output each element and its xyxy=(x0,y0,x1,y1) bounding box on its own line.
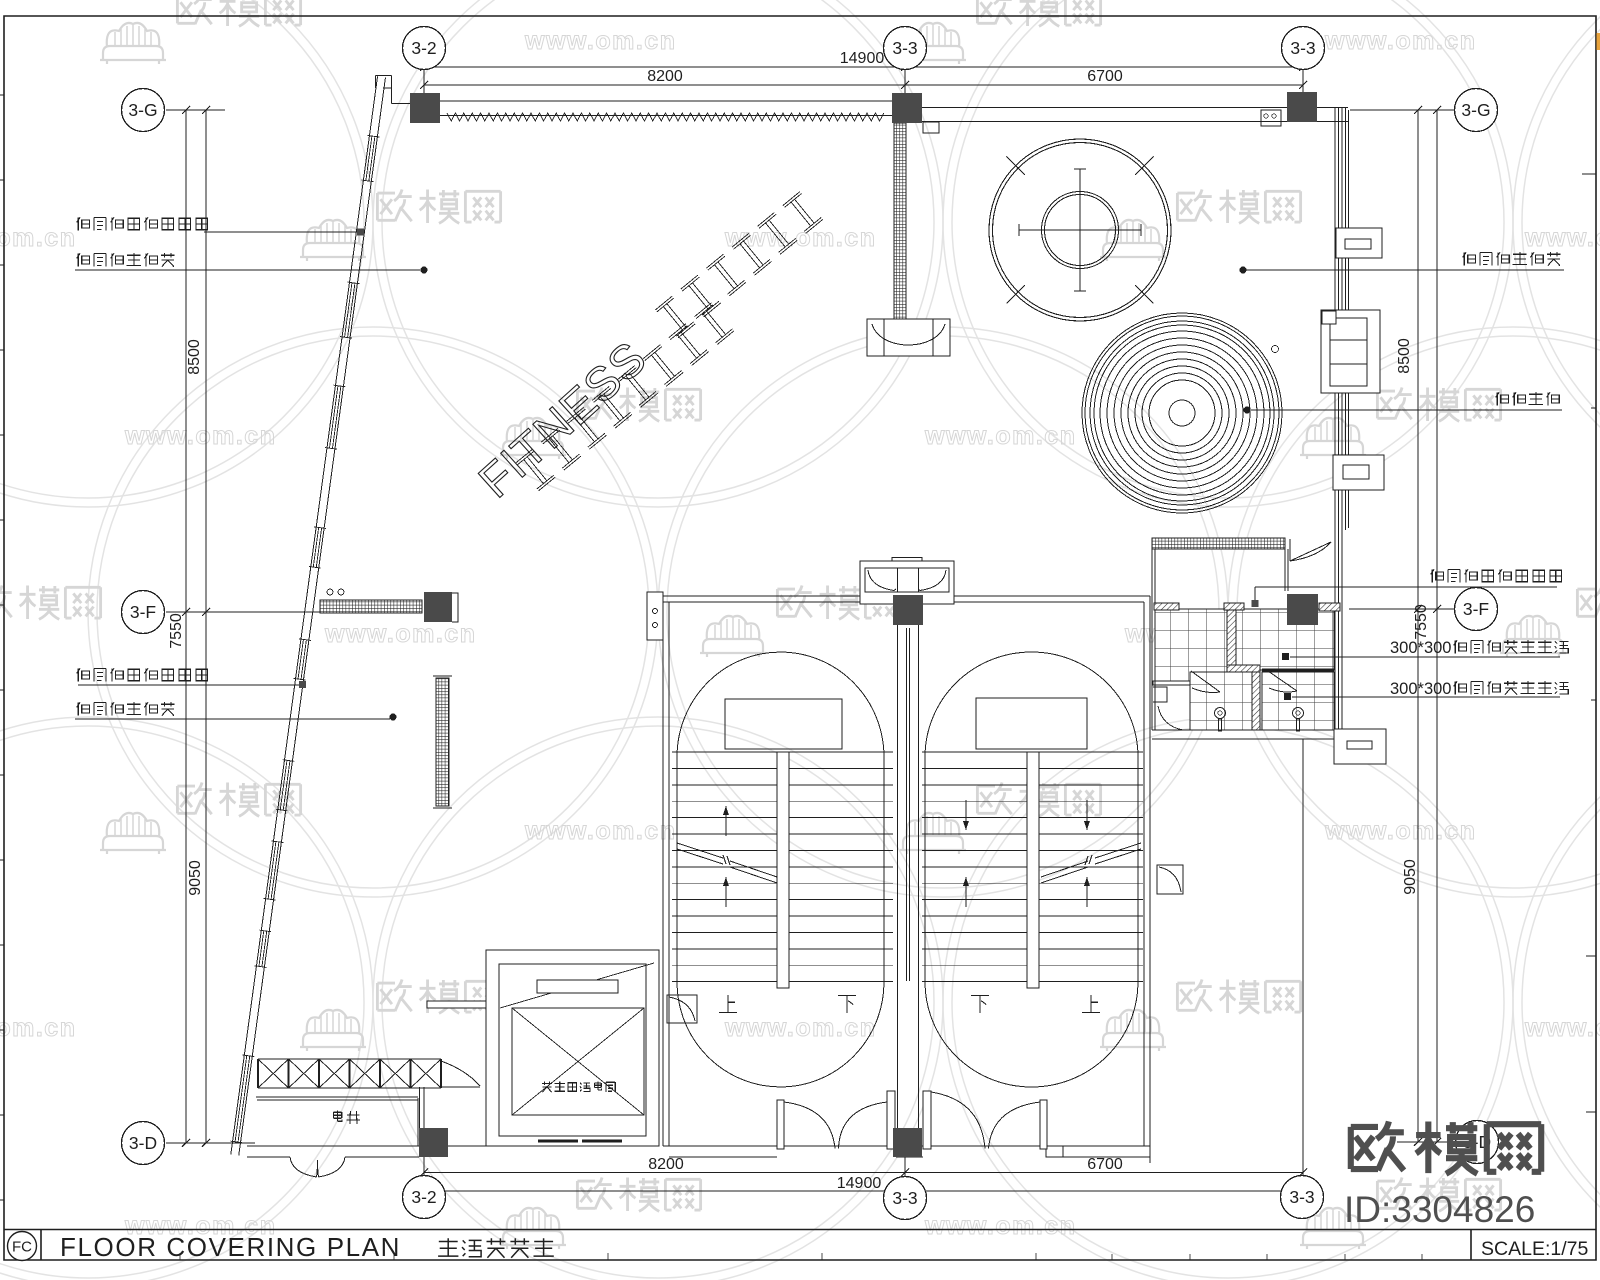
svg-text:300*300: 300*300 xyxy=(1390,680,1451,698)
svg-text:3-3: 3-3 xyxy=(892,38,917,58)
svg-text:ID:3304826: ID:3304826 xyxy=(1344,1189,1535,1230)
svg-text:3-F: 3-F xyxy=(130,602,156,622)
svg-text:3-3: 3-3 xyxy=(1290,38,1315,58)
svg-text:8500: 8500 xyxy=(1396,338,1413,374)
svg-text:FC: FC xyxy=(12,1239,32,1256)
svg-text:8200: 8200 xyxy=(648,1156,684,1173)
svg-text:6700: 6700 xyxy=(1087,68,1123,85)
svg-text:SCALE:1/75: SCALE:1/75 xyxy=(1481,1238,1588,1260)
svg-text:8200: 8200 xyxy=(647,68,683,85)
svg-text:6700: 6700 xyxy=(1087,1156,1123,1173)
svg-text:3-3: 3-3 xyxy=(892,1188,917,1208)
svg-text:3-D: 3-D xyxy=(129,1133,157,1153)
svg-text:3-G: 3-G xyxy=(128,100,157,120)
svg-text:3-2: 3-2 xyxy=(411,38,436,58)
svg-text:8500: 8500 xyxy=(186,339,203,375)
svg-text:300*300: 300*300 xyxy=(1390,639,1451,657)
svg-text:14900: 14900 xyxy=(840,50,885,67)
svg-text:7550: 7550 xyxy=(168,613,185,649)
svg-text:9050: 9050 xyxy=(1402,859,1419,895)
svg-text:3-3: 3-3 xyxy=(1289,1187,1314,1207)
svg-text:FLOOR COVERING PLAN: FLOOR COVERING PLAN xyxy=(60,1232,401,1262)
svg-text:3-F: 3-F xyxy=(1463,599,1489,619)
svg-text:3-G: 3-G xyxy=(1461,100,1490,120)
svg-text:3-2: 3-2 xyxy=(411,1187,436,1207)
svg-text:14900: 14900 xyxy=(837,1175,882,1192)
svg-text:9050: 9050 xyxy=(187,860,204,896)
